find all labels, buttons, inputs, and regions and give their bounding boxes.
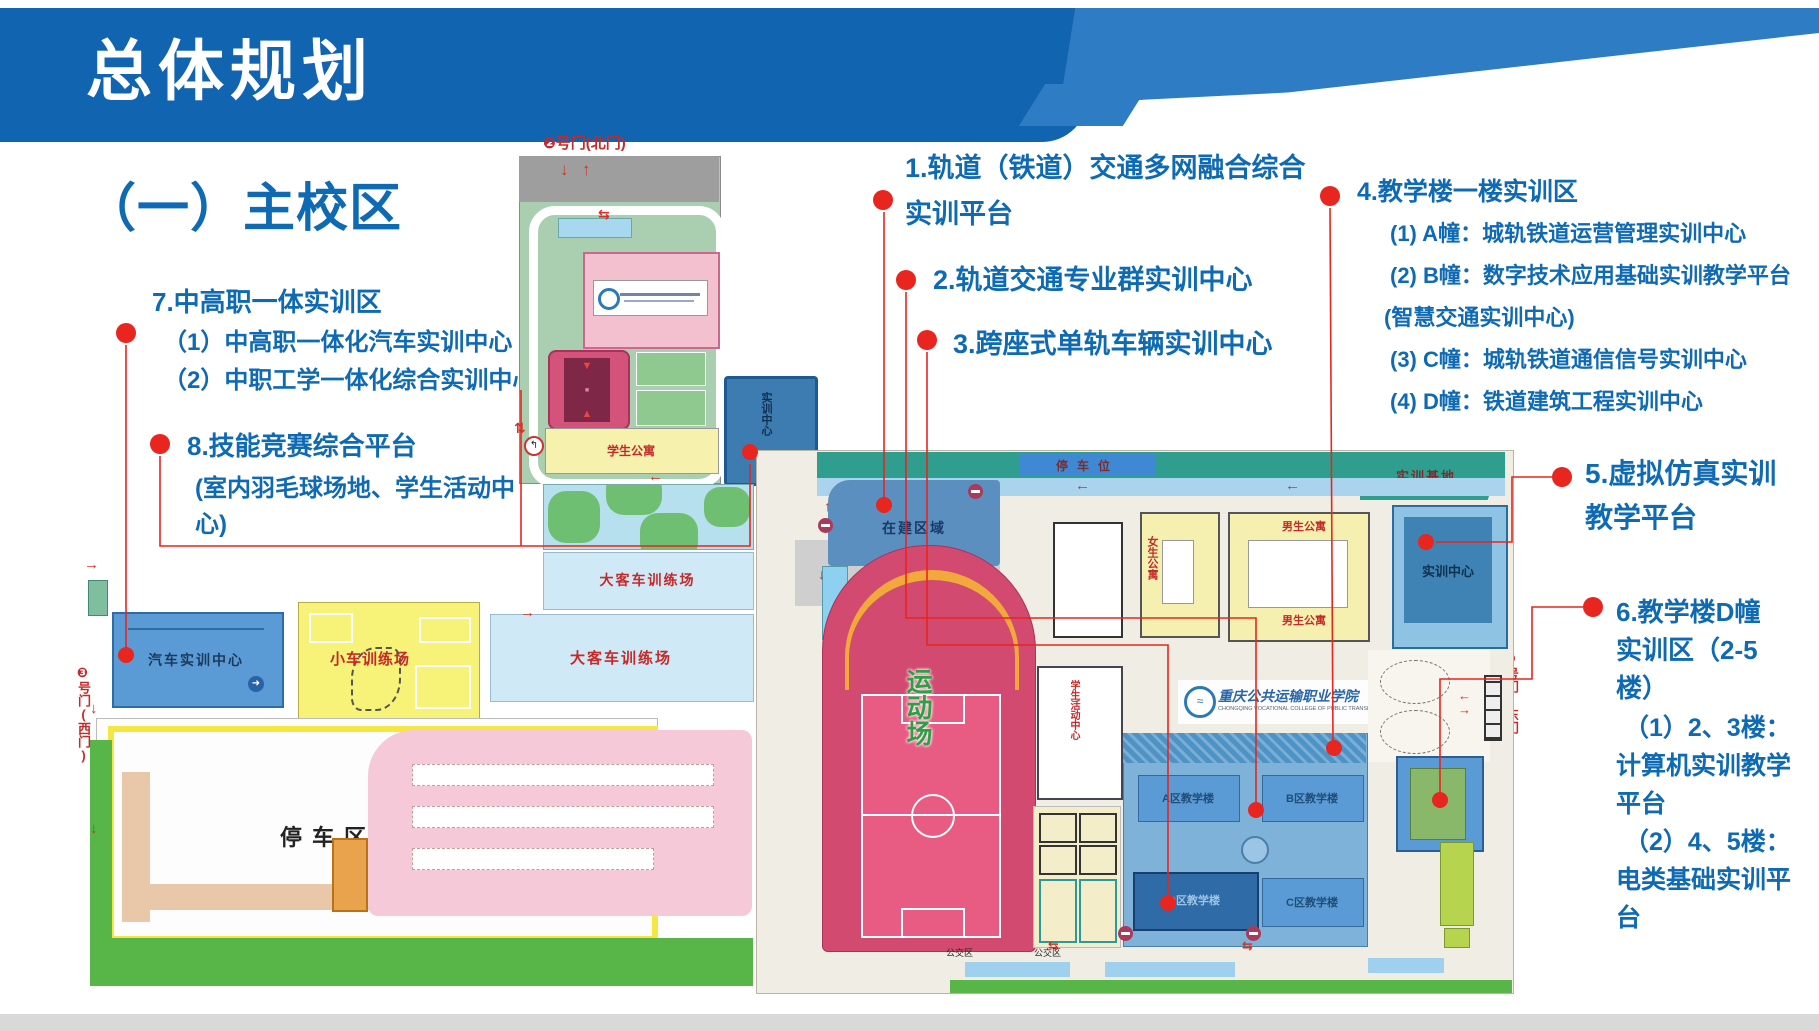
student-dorm-label: 学生公寓 [545,428,717,472]
turn-sign: ↰ [524,436,544,456]
bullet-annotation-2 [896,270,916,290]
bus-bar-1 [965,962,1070,977]
east-plaza-arc-1 [1380,660,1450,704]
annotation-4-item-4: (3) C幢：城轨铁道通信信号实训中心 [1390,342,1747,374]
dot-north-training-center [742,444,758,460]
dot-construction-zone [876,497,892,513]
auto-center-sign: ➜ [248,676,264,692]
annotation-6-line-9: 台 [1616,898,1641,934]
gym-arrow-down-icon: ▼ [582,360,593,372]
roundabout [1241,836,1269,864]
arrow-east-gate-right-icon: → [1458,702,1471,717]
field-box-bottom [901,908,965,936]
annotation-4-title: 4.教学楼一楼实训区 [1357,172,1578,208]
dot-building-d [1160,895,1176,911]
course-blob-3 [640,513,698,550]
building-c-label: C区教学楼 [1262,878,1362,925]
annotation-5-line-1: 5.虚拟仿真实训 [1585,452,1776,492]
annotation-4-item-3: (智慧交通实训中心) [1384,300,1575,332]
arrow-ring-left-1-icon: ← [1075,477,1090,494]
dot-right-training-center [1418,534,1434,550]
annotation-3-text: 3.跨座式单轨车辆实训中心 [953,322,1273,361]
annotation-7-title: 7.中高职一体实训区 [152,282,382,319]
bullet-annotation-7 [116,323,136,343]
arrow-construction-down-icon: ↓ [818,566,825,582]
east-gate-structure [1484,675,1502,741]
car-field-court-1 [309,613,353,643]
annotation-6-line-2: 实训区（2-5 [1616,630,1758,667]
bus-zone-label-1: 公交区 [946,946,973,959]
annotation-7-item-2: （2）中职工学一体化综合实训中心 [163,360,536,395]
annotation-6-line-6: 平台 [1616,784,1666,820]
girls-dorm-label: 女生公寓 [1144,536,1160,606]
car-field-court-2 [419,617,471,643]
gym-inner-court: ▼ ■ ▲ [564,358,610,422]
annotation-6-line-8: 电类基础实训平 [1616,860,1791,896]
north-road [519,156,719,202]
gym-mark: ■ [585,387,589,394]
boys-dorm-court [1248,540,1348,608]
arrow-wavy-icon: ← [648,468,663,485]
court-2 [1079,813,1117,843]
bullet-annotation-4 [1320,186,1340,206]
arrow-north-gate-down-icon: ↓ [560,160,569,180]
bullet-annotation-6 [1583,597,1603,617]
annotation-2-text: 2.轨道交通专业群实训中心 [933,258,1253,297]
wavy-course [543,484,754,550]
orange-building [332,838,368,912]
bus-slot-row-1 [412,764,714,786]
north-green-patch-2 [636,390,706,426]
annotation-5-line-2: 教学平台 [1585,496,1697,536]
bullet-annotation-1 [873,190,893,210]
arrow-two-way-icon: ⇆ [598,206,610,223]
auditorium-building [1053,522,1123,638]
arrow-ring-left-2-icon: ← [1285,477,1300,494]
right-map-green-bottom [950,980,1512,993]
basketball-court-1 [1039,879,1077,943]
annotation-6-line-4: （1）2、3楼： [1624,708,1791,744]
annotation-8-title: 8.技能竞赛综合平台 [187,426,417,463]
bullet-annotation-3 [917,330,937,350]
parking-spots-label: 停车位 [1020,454,1155,476]
girls-dorm-court [1162,540,1194,604]
building-a-label: A区教学楼 [1138,775,1238,820]
annotation-8-sub-2: 心) [195,504,227,539]
arrow-east-gate-left-icon: ← [1458,688,1471,703]
green-tower-annex [1444,928,1470,948]
bus-bar-3 [1368,958,1444,973]
admin-logo-script [620,293,700,296]
section-title: （一）主校区 [84,166,402,241]
no-entry-sign-1 [968,484,983,499]
dot-d-annex [1432,792,1448,808]
dot-teaching-north-bar [1326,740,1342,756]
activity-center-label: 学生活动中心 [1066,680,1081,784]
court-4 [1079,845,1117,875]
admin-logo-mark [598,288,620,310]
annotation-1-line-1: 1.轨道（铁道）交通多网融合综合 [905,146,1306,185]
annotation-6-line-7: （2）4、5楼： [1624,822,1791,858]
arrow-mid-icon: → [520,604,535,621]
footer-band [0,1014,1819,1031]
bus-field-1-label: 大客车训练场 [543,552,752,608]
dot-teaching-center [1248,802,1264,818]
annotation-6-line-1: 6.教学楼D幢 [1616,592,1760,629]
bullet-annotation-8 [150,434,170,454]
college-name: 重庆公共运输职业学院 [1218,686,1358,706]
annotation-4-item-1: (1) A幢：城轨铁道运营管理实训中心 [1390,216,1746,248]
north-blue-strip [558,218,632,238]
bullet-annotation-5 [1552,467,1572,487]
arrow-construction-up-icon: ↑ [824,498,831,514]
green-tower [1440,842,1474,926]
slide: 总体规划 （一）主校区 7.中高职一体实训区 （1）中高职一体化汽车实训中心 （… [0,0,1819,1031]
arrow-side-down-2-icon: ↓ [90,820,98,837]
college-logo: ≈ [1184,686,1216,718]
building-d-label: D区教学楼 [1133,872,1255,927]
left-map-green-bottom [93,938,753,986]
course-blob-2 [606,484,662,515]
bus-field-2-label: 大客车训练场 [490,614,752,700]
courts-area [1033,806,1121,948]
gym-arrow-up-icon: ▲ [582,408,593,420]
no-entry-sign-3 [1118,926,1133,941]
north-gate-label: ❷号门(北门) [543,132,626,153]
left-map-green-side [90,740,112,986]
building-b-label: B区教学楼 [1262,775,1362,820]
course-blob-1 [548,491,600,543]
annotation-6-line-3: 楼） [1616,668,1668,705]
annotation-6-line-5: 计算机实训教学 [1616,746,1791,782]
arrow-north-gate-up-icon: ↑ [582,160,591,180]
boys-dorm-label-2: 男生公寓 [1282,612,1326,628]
annotation-8-sub-1: (室内羽毛球场地、学生活动中 [195,468,515,503]
bus-slot-row-3 [412,848,654,870]
car-field-court-3 [415,665,471,709]
no-entry-sign-2 [818,518,833,533]
car-field-label: 小车训练场 [330,648,410,669]
arrow-west-gate-icon: → [84,556,99,573]
parking-zone-strip-left [122,772,150,922]
annotation-1-line-2: 实训平台 [905,192,1013,231]
bus-bar-2 [1105,962,1235,977]
stadium-label: 运动场 [900,668,937,808]
annotation-7-item-1: （1）中高职一体化汽车实训中心 [163,322,512,357]
arrow-side-down-icon: ↓ [90,700,98,717]
arrow-bus-1-icon: ⇆ [1048,938,1059,954]
right-training-center-label: 实训中心 [1404,560,1492,580]
bus-slot-row-2 [412,806,714,828]
annotation-4-item-5: (4) D幢：铁道建筑工程实训中心 [1390,384,1703,416]
admin-logo-script-2 [624,300,694,302]
west-gate-structure [88,580,108,616]
court-3 [1039,845,1077,875]
bus-parking-area [368,730,752,916]
annotation-4-item-2: (2) B幢：数字技术应用基础实训教学平台 [1390,258,1791,290]
arrow-left-edge-icon: ⇅ [514,420,526,437]
court-1 [1039,813,1077,843]
north-green-patch-1 [636,352,706,386]
west-gate-label: ❸号门(西门) [74,666,93,786]
arrow-bus-2-icon: ⇆ [1242,938,1253,954]
dot-auto-center [118,647,134,663]
basketball-court-2 [1079,879,1117,943]
course-blob-4 [704,487,750,527]
header-swoosh [1060,8,1819,104]
page-title: 总体规划 [86,18,374,114]
boys-dorm-label-1: 男生公寓 [1282,518,1326,534]
east-plaza-arc-2 [1380,710,1450,754]
